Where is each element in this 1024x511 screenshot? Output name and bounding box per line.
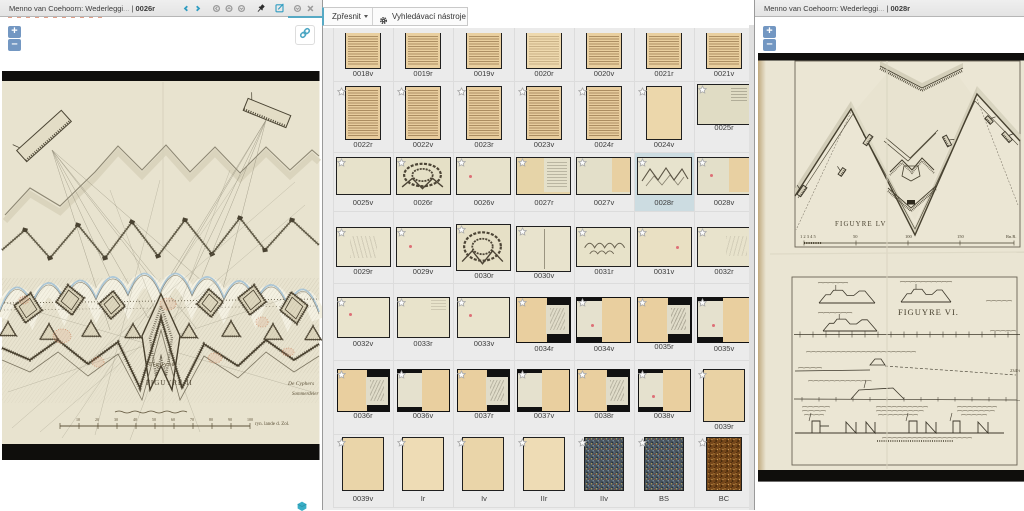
svg-text:100: 100: [905, 234, 913, 239]
svg-text:20: 20: [95, 417, 99, 422]
svg-text:Sommerdeler: Sommerdeler: [292, 392, 319, 397]
svg-text:234½: 234½: [1010, 368, 1021, 373]
svg-text:60: 60: [171, 417, 175, 422]
svg-text:ryn. lande d. Zol.: ryn. lande d. Zol.: [255, 422, 289, 427]
svg-text:1 2 3 4 5: 1 2 3 4 5: [800, 234, 817, 239]
svg-text:40: 40: [133, 417, 137, 422]
svg-text:De Cyphers: De Cyphers: [287, 381, 314, 387]
svg-text:150: 150: [957, 234, 965, 239]
svg-text:10: 10: [76, 417, 80, 422]
svg-text:80: 80: [209, 417, 213, 422]
svg-text:FIGUYRE LV: FIGUYRE LV: [835, 221, 887, 228]
svg-text:90: 90: [228, 417, 232, 422]
svg-text:Tiguyre ·: Tiguyre ·: [148, 361, 181, 368]
svg-text:50: 50: [152, 417, 156, 422]
svg-text:100: 100: [247, 417, 253, 422]
svg-text:70: 70: [190, 417, 194, 422]
svg-text:FIGUYRE VI.: FIGUYRE VI.: [898, 307, 959, 317]
svg-text:FIGUYRE II: FIGUYRE II: [146, 379, 193, 387]
svg-text:Rn.R.: Rn.R.: [1006, 234, 1017, 239]
svg-text:30: 30: [114, 417, 118, 422]
svg-text:50: 50: [853, 234, 858, 239]
